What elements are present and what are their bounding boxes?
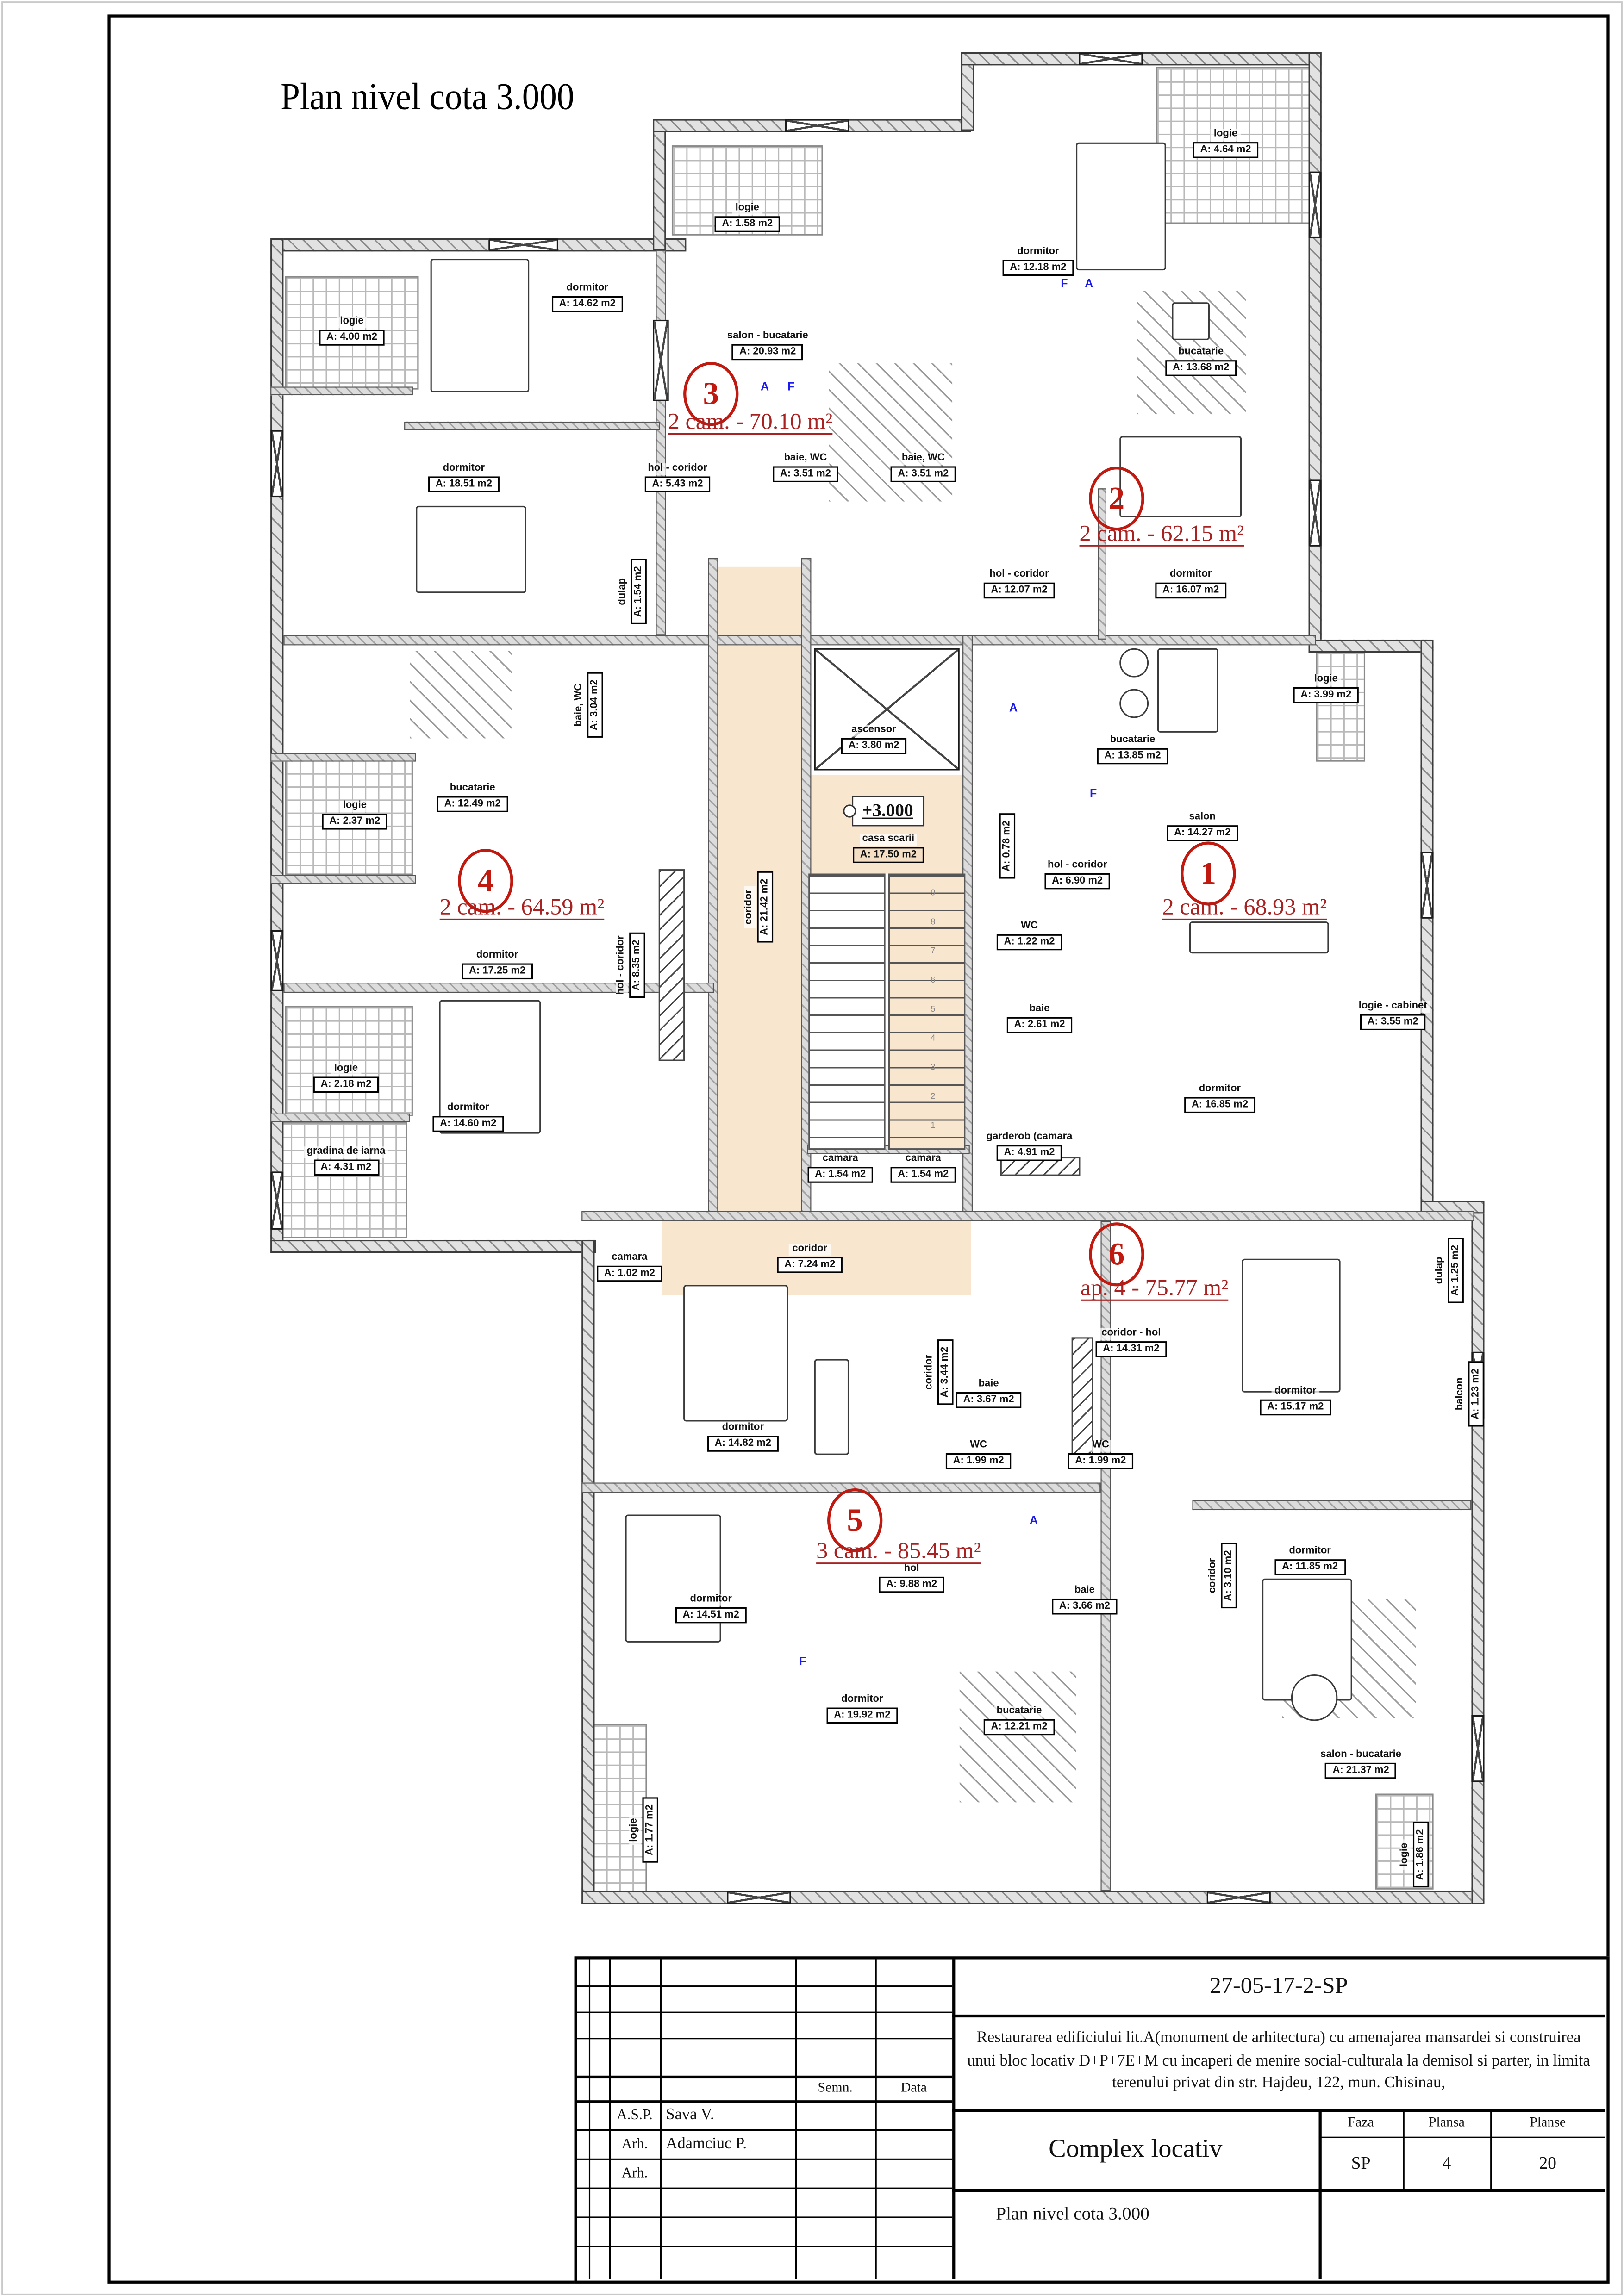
exterior-wall (270, 1240, 596, 1253)
room-area: A: 3.10 m2 (1221, 1543, 1238, 1608)
project-description: Restaurarea edificiului lit.A(monument d… (961, 2017, 1596, 2106)
room-area: A: 4.91 m2 (997, 1145, 1062, 1162)
room-label-dormitor: dormitorA: 12.18 m2 (1003, 247, 1074, 276)
furniture-code-letter: F (799, 1655, 806, 1668)
interior-wall (283, 635, 1316, 645)
room-label-dormitor: dormitorA: 14.51 m2 (675, 1594, 747, 1624)
room-area: A: 0.78 m2 (999, 813, 1016, 878)
room-name: coridor - hol (1099, 1328, 1164, 1340)
window-symbol (270, 930, 283, 991)
room-area: A: 13.85 m2 (1097, 748, 1168, 765)
drawing-sheet: Plan nivel cota 3.000 +3.000 123456789lo… (0, 0, 1624, 2296)
stamp-header-planse: Planse (1490, 2109, 1605, 2137)
signer-name: Sava V. (660, 2100, 795, 2129)
room-name: baie (975, 1379, 1002, 1391)
room-label-baie-wc: baie, WCA: 3.51 m2 (891, 453, 956, 483)
room-label-balcon: balconA: 1.23 m2 (1455, 1361, 1485, 1426)
room-label-logie: logieA: 2.18 m2 (313, 1064, 379, 1093)
furniture-code-letter: A (1009, 701, 1018, 714)
stair-step-number: 6 (931, 977, 936, 985)
room-name: logie (1211, 129, 1241, 141)
stair-step-number: 8 (931, 919, 936, 927)
room-name: dormitor (687, 1594, 735, 1606)
room-label-baie-wc: baie, WCA: 3.51 m2 (773, 453, 838, 483)
room-label-garderob-camara: garderob (camaraA: 4.91 m2 (983, 1132, 1075, 1162)
room-name: WC (1089, 1440, 1112, 1452)
room-area: A: 3.66 m2 (1052, 1599, 1117, 1615)
project-name: Complex locativ (952, 2109, 1318, 2189)
staircase-flight (888, 874, 965, 1150)
window-symbol (653, 320, 669, 401)
apartment-4-label: 2 cam. - 64.59 m² (440, 896, 605, 922)
room-name: camara (902, 1154, 944, 1165)
room-name: baie, WC (574, 680, 586, 729)
room-label-camara: camaraA: 1.54 m2 (891, 1154, 956, 1183)
window-symbol (270, 430, 283, 497)
window-symbol (270, 1171, 283, 1230)
room-label-bucatarie: bucatarieA: 13.68 m2 (1165, 347, 1237, 377)
room-name: logie - cabinet (1356, 1001, 1430, 1013)
level-mark-value: +3.000 (862, 800, 913, 822)
room-label-dormitor: dormitorA: 15.17 m2 (1260, 1386, 1331, 1416)
room-area: A: 14.60 m2 (432, 1116, 504, 1132)
room-area: A: 12.18 m2 (1003, 260, 1074, 277)
room-name: hol - coridor (616, 933, 628, 998)
room-name: coridor (1208, 1555, 1219, 1596)
stamp-value-plansa: 4 (1403, 2137, 1490, 2189)
room-label-hol-coridor: hol - coridorA: 6.90 m2 (1044, 860, 1110, 890)
room-name: ascensor (849, 725, 899, 736)
furniture-chair (1119, 648, 1149, 678)
signer-role: A.S.P. (609, 2100, 660, 2129)
room-area: A: 3.99 m2 (1293, 687, 1359, 704)
staircase-flight (808, 874, 885, 1150)
room-name: dormitor (444, 1103, 492, 1114)
room-area: A: 18.51 m2 (428, 477, 500, 493)
apartment-6-label: ap. 4 - 75.77 m² (1081, 1276, 1228, 1302)
room-label-wc: WCA: 1.99 m2 (1068, 1440, 1133, 1470)
exterior-wall (653, 119, 666, 250)
loggia-floor-grid (276, 1122, 407, 1238)
room-name: gradina de iarna (304, 1146, 388, 1158)
room-name: logie (629, 1815, 641, 1845)
stair-step-number: 4 (931, 1035, 936, 1044)
room-name: WC (1018, 921, 1041, 933)
floor-hatch (410, 651, 512, 738)
room-name: baie, WC (781, 453, 830, 465)
exterior-wall (1471, 1201, 1484, 1904)
loggia-floor-grid (1316, 651, 1365, 762)
room-name: logie (340, 801, 369, 812)
furniture-outline (814, 1359, 849, 1455)
room-area: A: 1.54 m2 (891, 1167, 956, 1183)
room-name: coridor (744, 887, 756, 927)
furniture-code-letter: F (1090, 787, 1097, 800)
exterior-wall (270, 238, 686, 251)
room-area: A: 15.17 m2 (1260, 1400, 1331, 1416)
wardrobe-symbol (659, 869, 685, 1061)
room-area: A: 21.42 m2 (757, 871, 774, 943)
room-name: hol - coridor (1045, 860, 1110, 872)
stamp-header-plansa: Plansa (1403, 2109, 1490, 2137)
room-name: bucatarie (1175, 347, 1226, 359)
room-name: salon (1186, 812, 1218, 824)
room-label-logie: logieA: 2.37 m2 (322, 801, 387, 830)
apartment-3-label: 2 cam. - 70.10 m² (668, 410, 833, 436)
stamp-header-faza: Faza (1319, 2109, 1403, 2137)
interior-wall (404, 422, 660, 430)
room-area: A: 3.67 m2 (956, 1392, 1021, 1409)
room-name: hol - coridor (987, 569, 1052, 581)
window-symbol (1207, 1891, 1271, 1904)
room-label-dormitor: dormitorA: 14.60 m2 (432, 1103, 504, 1132)
title-block-line (577, 2038, 952, 2039)
room-label-hol-coridor: hol - coridorA: 12.07 m2 (984, 569, 1055, 599)
room-label-dormitor: dormitorA: 14.62 m2 (552, 283, 623, 313)
interior-wall (581, 1211, 1474, 1221)
stair-step-number: 2 (931, 1093, 936, 1102)
room-area: A: 16.85 m2 (1184, 1097, 1255, 1114)
room-name: bucatarie (993, 1706, 1044, 1717)
interior-wall (708, 558, 718, 1221)
column-header-semn: Semn. (795, 2076, 875, 2100)
room-area: A: 21.37 m2 (1325, 1763, 1397, 1780)
room-area: A: 12.07 m2 (984, 583, 1055, 599)
room-label-salon-bucatarie: salon - bucatarieA: 21.37 m2 (1318, 1750, 1404, 1780)
furniture-code-letter: F (1061, 277, 1068, 290)
room-label-dormitor: dormitorA: 16.07 m2 (1155, 569, 1226, 599)
room-label-logie: logieA: 1.77 m2 (629, 1797, 659, 1862)
title-block-line (577, 2188, 952, 2189)
document-code: 27-05-17-2-SP (952, 1960, 1605, 2015)
room-name: logie (732, 203, 762, 215)
room-area: A: 6.90 m2 (1044, 873, 1110, 890)
signer-role: Arh. (609, 2129, 660, 2159)
room-area: A: 19.92 m2 (827, 1708, 898, 1724)
room-label-logie: logieA: 4.00 m2 (319, 317, 384, 346)
room-area: A: 1.23 m2 (1468, 1361, 1485, 1426)
furniture-code-letter: A (761, 380, 769, 393)
room-label-dulap: dulapA: 1.25 m2 (1435, 1238, 1464, 1303)
interior-wall (270, 1114, 410, 1122)
room-area: A: 9.88 m2 (879, 1577, 944, 1593)
title-block-line (577, 2246, 952, 2247)
exterior-wall (1420, 640, 1433, 1214)
room-area: A: 13.68 m2 (1165, 360, 1237, 377)
title-block-line (577, 2216, 952, 2218)
level-mark: +3.000 (852, 796, 925, 826)
window-symbol (785, 119, 849, 132)
room-name: dulap (1435, 1254, 1446, 1287)
furniture-chair (1119, 689, 1149, 718)
room-name: garderob (camara (983, 1132, 1075, 1144)
room-area: A: 14.27 m2 (1167, 825, 1238, 842)
room-name: hol - coridor (645, 463, 710, 475)
window-symbol (727, 1891, 791, 1904)
stair-step-number: 7 (931, 948, 936, 957)
stair-step-number: 9 (931, 890, 936, 898)
room-name: dormitor (838, 1694, 886, 1706)
title-block-line (875, 1960, 877, 2279)
room-area: A: 3.44 m2 (937, 1339, 954, 1405)
room-area: A: 1.77 m2 (643, 1797, 659, 1862)
room-name: dormitor (1272, 1386, 1319, 1398)
apartment-2-label: 2 cam. - 62.15 m² (1080, 522, 1244, 548)
room-label-salon-bucatarie: salon - bucatarieA: 20.93 m2 (725, 331, 811, 361)
exterior-wall (581, 1891, 1484, 1904)
title-block-line (577, 1985, 952, 1987)
room-name: coridor (789, 1244, 830, 1256)
signer-role: Arh. (609, 2159, 660, 2188)
furniture-chair (1291, 1674, 1337, 1721)
room-name: casa scarii (859, 834, 917, 846)
room-name: dormitor (1167, 569, 1215, 581)
room-area: A: 12.21 m2 (984, 1719, 1055, 1736)
room-name: logie (1311, 674, 1341, 686)
room-area: A: 8.35 m2 (629, 933, 646, 998)
room-label-hol-coridor: hol - coridorA: 8.35 m2 (616, 933, 646, 998)
room-area: A: 3.55 m2 (1360, 1014, 1425, 1031)
interior-wall (270, 875, 416, 884)
furniture-outline (683, 1285, 788, 1421)
room-label-baie: baieA: 3.67 m2 (956, 1379, 1021, 1409)
furniture-outline (1157, 648, 1218, 733)
room-area: A: 7.24 m2 (777, 1257, 843, 1274)
room-label-salon: salonA: 14.27 m2 (1167, 812, 1238, 842)
room-name: dormitor (440, 463, 487, 475)
room-area: A: 1.99 m2 (946, 1453, 1011, 1470)
room-name: dulap (618, 575, 629, 608)
room-area: A: 4.64 m2 (1193, 142, 1258, 159)
room-label-dormitor: dormitorA: 14.82 m2 (707, 1423, 779, 1452)
room-label-bucatarie: bucatarieA: 12.21 m2 (984, 1706, 1055, 1736)
room-name: dormitor (474, 950, 521, 962)
room-area: A: 2.37 m2 (322, 814, 387, 830)
signer-name: Adamciuc P. (660, 2129, 795, 2159)
interior-wall (656, 250, 666, 635)
room-name: bucatarie (447, 783, 498, 795)
room-area: A: 14.31 m2 (1096, 1341, 1167, 1358)
stair-step-number: 1 (931, 1122, 936, 1131)
furniture-outline (1189, 921, 1329, 953)
room-name: coridor (924, 1352, 936, 1393)
window-symbol (1309, 172, 1322, 238)
room-label-dormitor: dormitorA: 18.51 m2 (428, 463, 500, 493)
room-name: logie (331, 1064, 361, 1075)
room-label-dormitor: dormitorA: 19.92 m2 (827, 1694, 898, 1724)
room-label-bucatarie: bucatarieA: 12.49 m2 (437, 783, 508, 813)
room-label-dormitor: dormitorA: 17.25 m2 (462, 950, 533, 980)
room-label-dormitor: dormitorA: 16.85 m2 (1184, 1084, 1255, 1114)
room-area: A: 1.58 m2 (715, 216, 780, 233)
apartment-2-marker: 2 (1089, 467, 1144, 530)
room-area: A: 1.25 m2 (1448, 1238, 1464, 1303)
room-label-baie: baieA: 3.66 m2 (1052, 1586, 1117, 1615)
loggia-floor-grid (285, 1006, 413, 1116)
room-label-camara: camaraA: 1.54 m2 (808, 1154, 873, 1183)
furniture-outline (416, 506, 526, 593)
room-name: camara (609, 1253, 650, 1264)
furniture-outline (431, 259, 530, 392)
column-header-data: Data (875, 2076, 952, 2100)
room-area: A: 3.51 m2 (773, 467, 838, 483)
room-area: A: 16.07 m2 (1155, 583, 1226, 599)
room-area: A: 1.54 m2 (631, 559, 647, 624)
room-label-logie: logieA: 1.58 m2 (715, 203, 780, 233)
exterior-wall (1309, 640, 1434, 653)
room-name: balcon (1455, 1375, 1467, 1413)
room-area: A: 3.80 m2 (841, 738, 906, 755)
room-name: salon - bucatarie (725, 331, 811, 342)
room-name: dormitor (719, 1423, 767, 1434)
stamp-value-planse: 20 (1490, 2137, 1605, 2189)
room-label-hol-coridor: hol - coridorA: 5.43 m2 (645, 463, 710, 493)
room-area: A: 5.43 m2 (645, 477, 710, 493)
room-name: WC (967, 1440, 990, 1452)
room-label-baie: baieA: 2.61 m2 (1007, 1004, 1072, 1033)
interior-wall (270, 753, 416, 762)
room-area: A: 20.93 m2 (732, 344, 803, 361)
window-symbol (1420, 852, 1433, 918)
room-label-coridor: coridorA: 3.44 m2 (924, 1339, 954, 1405)
interior-wall (270, 386, 413, 395)
room-name: camara (819, 1154, 861, 1165)
room-label-casa-scarii: casa scariiA: 17.50 m2 (853, 834, 924, 864)
room-label-logie-cabinet: logie - cabinetA: 3.55 m2 (1356, 1001, 1430, 1031)
room-label-logie: logieA: 4.64 m2 (1193, 129, 1258, 159)
title-block-line (795, 1960, 797, 2279)
room-name: baie (1072, 1586, 1098, 1597)
room-area: A: 14.82 m2 (707, 1436, 779, 1452)
room-label-dulap: dulapA: 1.54 m2 (618, 559, 647, 624)
room-name: bucatarie (1107, 735, 1158, 747)
room-label-wc: WCA: 1.22 m2 (997, 921, 1062, 951)
room-label-coridor: coridorA: 3.10 m2 (1208, 1543, 1237, 1608)
room-label-coridor: coridorA: 21.42 m2 (744, 871, 774, 943)
room-label-logie: logieA: 3.99 m2 (1293, 674, 1359, 704)
stair-step-number: 3 (931, 1064, 936, 1073)
room-label-coridor: coridorA: 7.24 m2 (777, 1244, 843, 1274)
window-symbol (1309, 479, 1322, 546)
room-name: dormitor (563, 283, 611, 295)
room-name: baie (1026, 1004, 1053, 1015)
room-label-camara: camaraA: 1.02 m2 (597, 1253, 662, 1282)
room-area: A: 1.54 m2 (808, 1167, 873, 1183)
title-block: 27-05-17-2-SP Restaurarea edificiului li… (575, 1956, 1610, 2284)
room-label-coridor-hol: coridor - holA: 14.31 m2 (1096, 1328, 1167, 1358)
furniture-outline (1172, 302, 1210, 340)
exterior-wall (1309, 52, 1322, 651)
furniture-code-letter: F (787, 380, 794, 393)
room-label-area: A: 0.78 m2 (999, 813, 1016, 878)
floor-hatch (960, 1672, 1076, 1803)
room-area: A: 1.22 m2 (997, 934, 1062, 951)
interior-wall (581, 1482, 1100, 1493)
title-block-line (577, 2012, 952, 2013)
room-area: A: 17.25 m2 (462, 964, 533, 980)
room-name: logie (1400, 1840, 1412, 1869)
room-area: A: 3.51 m2 (891, 467, 956, 483)
apartment-1-label: 2 cam. - 68.93 m² (1162, 896, 1327, 922)
room-area: A: 11.85 m2 (1274, 1559, 1345, 1576)
room-area: A: 2.18 m2 (313, 1077, 379, 1094)
room-label-dormitor: dormitorA: 11.85 m2 (1274, 1546, 1345, 1576)
room-name: baie, WC (899, 453, 948, 465)
interior-wall (1100, 1221, 1111, 1891)
apartment-5-label: 3 cam. - 85.45 m² (816, 1539, 981, 1566)
room-area: A: 1.86 m2 (1413, 1822, 1430, 1887)
furniture-outline (1076, 143, 1166, 270)
window-symbol (1471, 1715, 1484, 1782)
furniture-outline (1242, 1259, 1341, 1393)
level-mark-ring-icon (843, 804, 856, 817)
room-name: dormitor (1014, 247, 1062, 258)
room-label-bucatarie: bucatarieA: 13.85 m2 (1097, 735, 1168, 765)
exterior-wall (581, 1240, 594, 1904)
title-block-line (589, 1960, 590, 2279)
window-symbol (1079, 52, 1143, 65)
window-symbol (488, 238, 558, 251)
sheet-title: Plan nivel cota 3.000 (952, 2189, 1318, 2279)
floor-plan: +3.000 123456789logieA: 4.00 m2dormitorA… (0, 0, 1624, 2296)
room-area: A: 1.99 m2 (1068, 1453, 1133, 1470)
room-area: A: 4.00 m2 (319, 330, 384, 346)
room-area: A: 14.62 m2 (552, 296, 623, 313)
room-area: A: 3.04 m2 (587, 672, 604, 737)
room-name: salon - bucatarie (1318, 1750, 1404, 1761)
room-area: A: 2.61 m2 (1007, 1017, 1072, 1034)
furniture-code-letter: A (1085, 277, 1093, 290)
room-area: A: 4.31 m2 (313, 1160, 379, 1176)
interior-wall (1192, 1500, 1471, 1510)
room-label-logie: logieA: 1.86 m2 (1400, 1822, 1430, 1887)
stair-step-number: 5 (931, 1006, 936, 1014)
room-label-ascensor: ascensorA: 3.80 m2 (841, 725, 906, 754)
room-name: logie (337, 317, 367, 328)
room-area: A: 14.51 m2 (675, 1607, 747, 1624)
furniture-code-letter: A (1030, 1514, 1038, 1527)
room-area: A: 17.50 m2 (853, 847, 924, 864)
room-area: A: 12.49 m2 (437, 796, 508, 813)
stamp-value-faza: SP (1319, 2137, 1403, 2189)
room-name: dormitor (1196, 1084, 1243, 1095)
room-label-gradina-de-iarna: gradina de iarnaA: 4.31 m2 (304, 1146, 388, 1176)
room-label-baie-wc: baie, WCA: 3.04 m2 (574, 672, 604, 737)
room-label-hol: holA: 9.88 m2 (879, 1564, 944, 1593)
room-label-wc: WCA: 1.99 m2 (946, 1440, 1011, 1470)
room-name: dormitor (1286, 1546, 1334, 1558)
room-area: A: 1.02 m2 (597, 1266, 662, 1282)
interior-wall (283, 983, 714, 993)
